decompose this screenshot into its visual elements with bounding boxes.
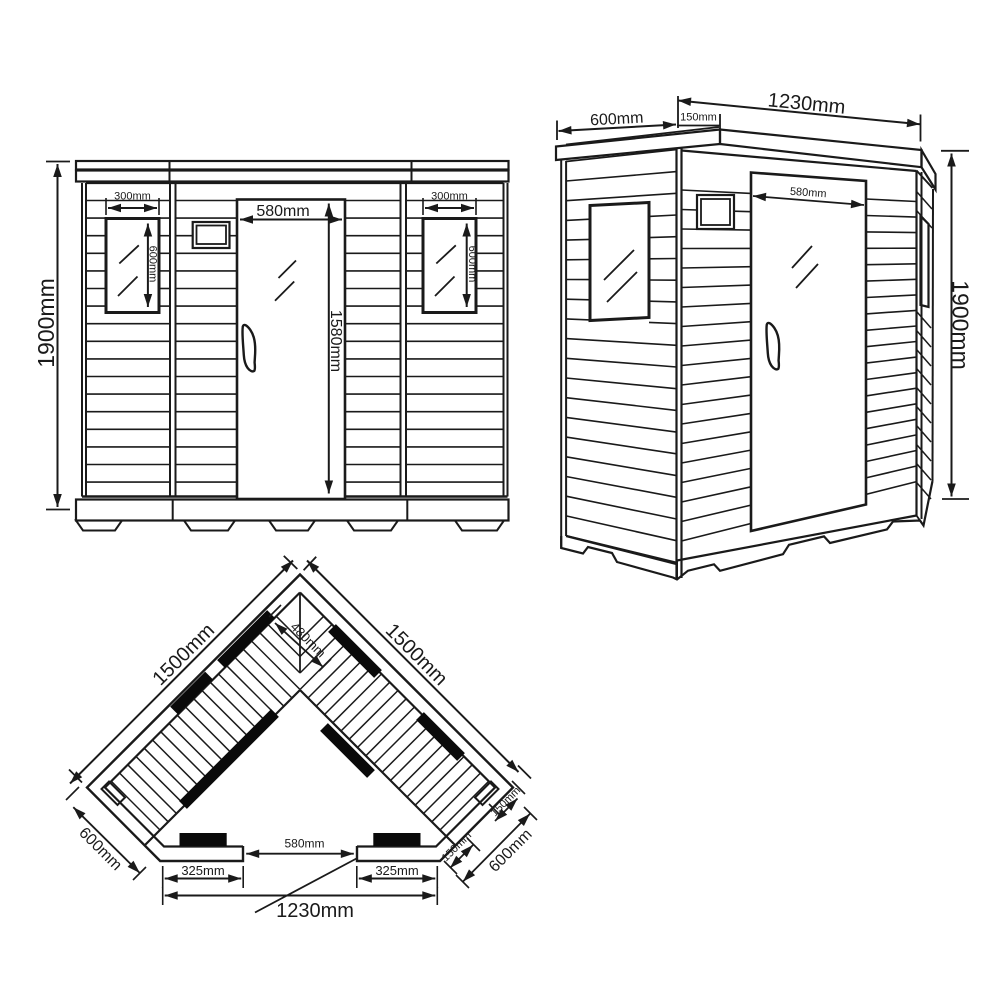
svg-text:600mm: 600mm xyxy=(147,246,159,283)
svg-text:300mm: 300mm xyxy=(431,191,468,203)
svg-text:600mm: 600mm xyxy=(590,110,644,130)
svg-text:325mm: 325mm xyxy=(375,863,418,878)
svg-text:325mm: 325mm xyxy=(181,863,224,878)
svg-text:1900mm: 1900mm xyxy=(948,280,974,369)
svg-text:1580mm: 1580mm xyxy=(327,310,344,372)
svg-text:580mm: 580mm xyxy=(789,186,826,201)
svg-text:1230mm: 1230mm xyxy=(276,900,354,922)
svg-text:1900mm: 1900mm xyxy=(33,278,59,367)
svg-text:300mm: 300mm xyxy=(114,191,151,203)
svg-text:150mm: 150mm xyxy=(680,112,717,124)
svg-text:580mm: 580mm xyxy=(256,203,309,220)
svg-text:580mm: 580mm xyxy=(284,837,324,851)
svg-text:600mm: 600mm xyxy=(466,246,478,283)
